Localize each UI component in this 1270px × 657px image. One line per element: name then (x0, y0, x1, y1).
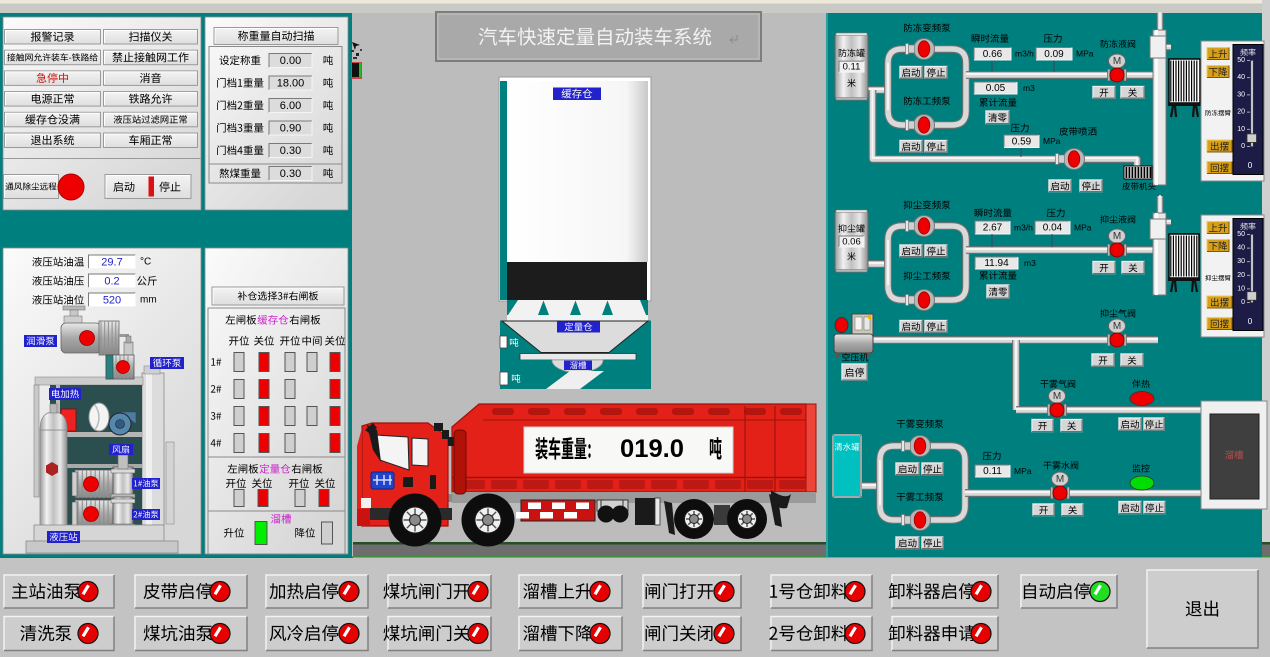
svg-text:10: 10 (1237, 126, 1245, 133)
svg-text:10: 10 (1237, 285, 1245, 292)
svg-text:M: M (1113, 321, 1121, 332)
svg-text:0.30: 0.30 (280, 168, 301, 180)
svg-text:MPa: MPa (1076, 49, 1094, 59)
svg-text:m3: m3 (1024, 258, 1036, 268)
svg-text:0.04: 0.04 (1043, 223, 1063, 234)
svg-text:0.2: 0.2 (104, 276, 119, 288)
svg-text:m3: m3 (1023, 83, 1035, 93)
svg-text:MPa: MPa (1074, 223, 1092, 233)
svg-text:019.0: 019.0 (620, 435, 684, 463)
svg-text:50: 50 (1237, 57, 1245, 64)
svg-text:0: 0 (1241, 143, 1245, 150)
svg-text:30: 30 (1237, 91, 1245, 98)
svg-text:0.11: 0.11 (983, 466, 1002, 477)
svg-text:40: 40 (1237, 245, 1245, 252)
svg-text:50: 50 (1237, 231, 1245, 238)
svg-text:0: 0 (1248, 161, 1253, 170)
svg-text:40: 40 (1237, 74, 1245, 81)
svg-text:0.66: 0.66 (983, 49, 1003, 60)
svg-text:m3/h: m3/h (1015, 49, 1034, 59)
svg-text:0.30: 0.30 (280, 145, 301, 157)
svg-text:0: 0 (1248, 317, 1253, 326)
svg-text:M: M (1113, 231, 1121, 242)
svg-text:20: 20 (1237, 109, 1245, 116)
svg-text:0.11: 0.11 (843, 62, 861, 73)
svg-text:MPa: MPa (1043, 136, 1061, 146)
svg-text:M: M (1056, 474, 1064, 485)
svg-text:0.59: 0.59 (1012, 136, 1032, 147)
svg-text:°C: °C (140, 257, 151, 268)
svg-text:m3/h: m3/h (1014, 223, 1033, 233)
svg-text:29.7: 29.7 (101, 257, 122, 269)
svg-text:M: M (1113, 56, 1121, 67)
svg-text:MPa: MPa (1014, 466, 1032, 476)
svg-text:0.05: 0.05 (986, 83, 1006, 94)
svg-text:2.67: 2.67 (983, 223, 1003, 234)
svg-text:20: 20 (1237, 272, 1245, 279)
svg-text:520: 520 (103, 295, 121, 307)
svg-text:0: 0 (1241, 299, 1245, 306)
svg-text:0.00: 0.00 (280, 55, 301, 67)
svg-text:0.09: 0.09 (1044, 49, 1064, 60)
svg-text:mm: mm (140, 295, 157, 306)
svg-text:11.94: 11.94 (984, 258, 1009, 269)
svg-text:0.06: 0.06 (842, 237, 861, 248)
svg-text:6.00: 6.00 (280, 100, 301, 112)
svg-text:30: 30 (1237, 258, 1245, 265)
svg-text:0.90: 0.90 (280, 123, 301, 135)
svg-text:M: M (1053, 391, 1061, 402)
svg-text:18.00: 18.00 (277, 78, 305, 90)
